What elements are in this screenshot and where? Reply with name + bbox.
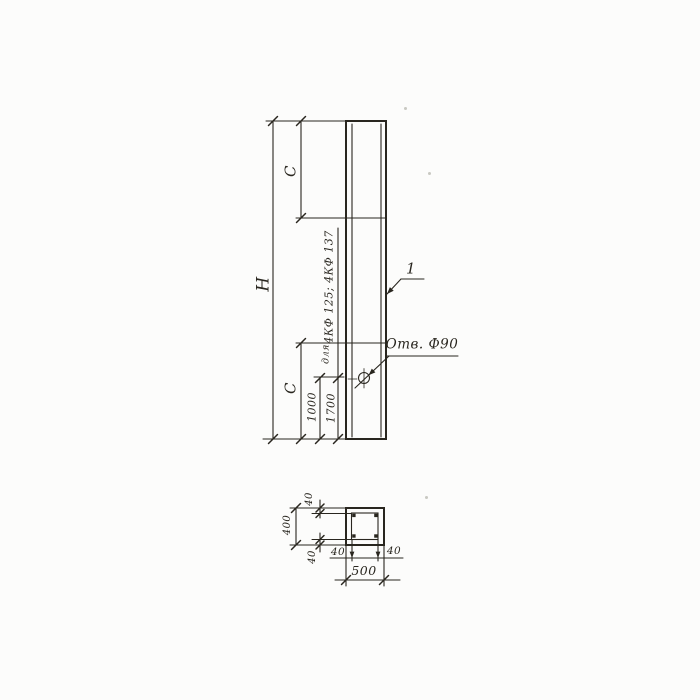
section-cover-left-label: 40 bbox=[331, 547, 345, 558]
scan-speck bbox=[428, 172, 431, 175]
rebar-dot bbox=[374, 514, 377, 517]
part-mark-label: 1 bbox=[406, 262, 416, 277]
scan-speck bbox=[404, 107, 407, 110]
scan-speck bbox=[425, 496, 428, 499]
section-cover-right-label: 40 bbox=[387, 546, 401, 557]
rebar-dot bbox=[374, 534, 377, 537]
section-cover-bottom-label: 40 bbox=[308, 550, 318, 564]
hole-offset-primary-label: 1000 bbox=[307, 392, 318, 422]
rebar-dot bbox=[352, 514, 355, 517]
hole-offset-alt-label: 1700 bbox=[326, 393, 337, 423]
overall-height-label: H bbox=[256, 276, 273, 291]
hole-callout-label: Отв. Ф90 bbox=[386, 338, 459, 352]
section-height-label: 400 bbox=[283, 515, 293, 536]
arrowhead-icon bbox=[376, 552, 381, 558]
top-segment-label: C bbox=[284, 165, 299, 177]
applicability-prefix-note: для bbox=[321, 344, 331, 364]
applicability-marks-note: 4КФ 125; 4КФ 137 bbox=[324, 230, 335, 343]
section-width-label: 500 bbox=[351, 565, 376, 578]
rebar-dot bbox=[352, 534, 355, 537]
bottom-segment-label: C bbox=[284, 382, 299, 394]
technical-drawing-strokes bbox=[0, 0, 700, 700]
drawing-sheet: H C C 1000 1700 4КФ 125; 4КФ 137 для Отв… bbox=[0, 0, 700, 700]
section-cover-top-label: 40 bbox=[305, 492, 315, 506]
arrowhead-icon bbox=[350, 552, 355, 558]
